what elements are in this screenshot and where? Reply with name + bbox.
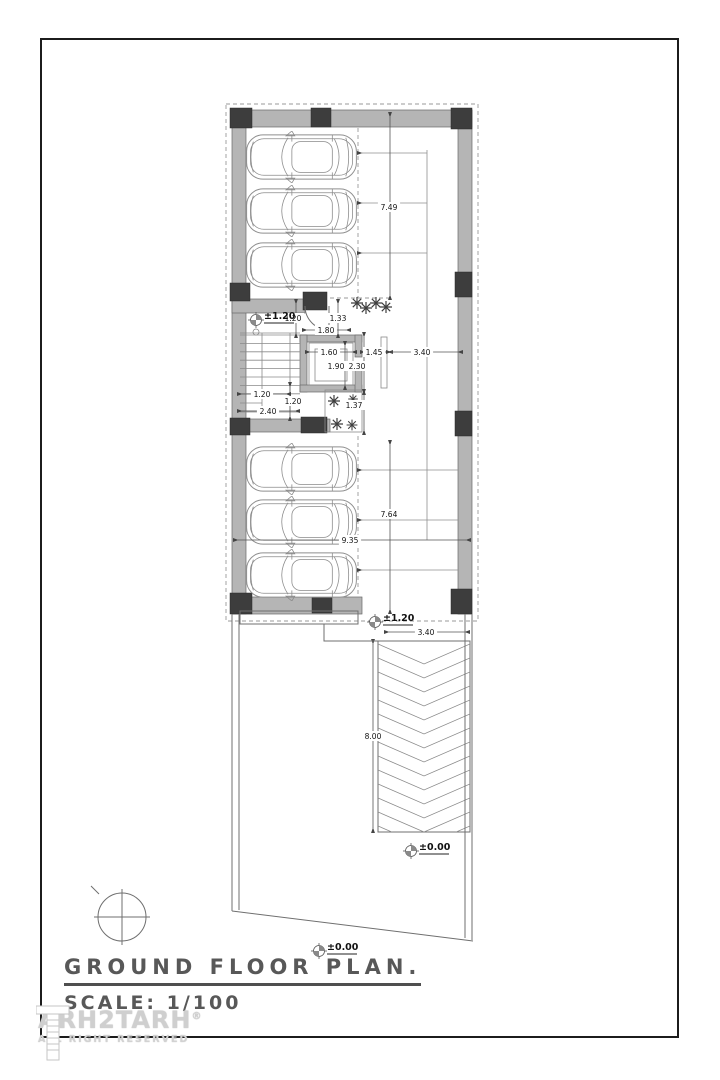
dimension-label: 1.60 [318,347,340,357]
svg-text:7.64: 7.64 [381,510,398,519]
svg-text:1.20: 1.20 [254,390,271,399]
svg-text:±1.20: ±1.20 [264,311,296,322]
dimension-label: 2.30 [346,361,368,371]
car-bottom-1 [247,443,357,495]
floor-plan-drawing: 7.491.201.331.801.601.453.401.902.301.20… [0,0,720,1080]
svg-text:±1.20: ±1.20 [383,613,415,624]
dimension-label: 2.40 [257,406,279,416]
level-marker: ±1.20 [367,613,415,630]
dimension-label: 1.45 [363,347,385,357]
dimension-label: 1.20 [282,396,304,406]
svg-text:9.35: 9.35 [342,536,359,545]
svg-text:±0.00: ±0.00 [327,942,359,953]
ramp-chevrons [378,644,470,860]
level-marker: ±0.00 [403,842,451,859]
car-top-2 [247,185,357,237]
wall-stub [381,337,387,388]
dimension-label: 1.33 [327,313,349,323]
dimension-label: 3.40 [411,347,433,357]
svg-text:1.33: 1.33 [330,314,347,323]
level-marker: ±1.20 [248,311,296,328]
svg-text:1.90: 1.90 [328,362,345,371]
svg-text:2.30: 2.30 [349,362,366,371]
dimension-label: 1.80 [315,325,337,335]
car-top-1 [247,131,357,183]
shrub-row [351,297,392,314]
yard-boundary [232,614,473,941]
dimension-label: 8.00 [362,731,384,741]
svg-text:3.40: 3.40 [414,348,431,357]
drawing-sheet: 7.491.201.331.801.601.453.401.902.301.20… [0,0,720,1080]
ramp-area [240,611,470,860]
north-arrow-icon [91,886,150,945]
page-title: GROUND FLOOR PLAN. [64,955,421,979]
dimension-label: 9.35 [339,535,361,545]
svg-text:1.37: 1.37 [346,401,363,410]
svg-text:1.20: 1.20 [285,397,302,406]
dimension-label: 1.90 [325,361,347,371]
svg-text:1.80: 1.80 [318,326,335,335]
svg-text:8.00: 8.00 [365,732,382,741]
svg-text:1.45: 1.45 [366,348,383,357]
dimension-label: 1.20 [251,389,273,399]
title-underline [64,983,421,986]
dimension-label: 1.37 [343,400,365,410]
dimension-label: 7.49 [378,202,400,212]
svg-text:7.49: 7.49 [381,203,398,212]
svg-text:3.40: 3.40 [418,628,435,637]
watermark: ARH2TARH® ALL RIGHT RESERVED [36,998,203,1045]
dimension-label: 3.40 [415,627,437,637]
dimension-label: 7.64 [378,509,400,519]
svg-text:1.60: 1.60 [321,348,338,357]
svg-text:2.40: 2.40 [260,407,277,416]
car-bottom-3 [247,549,357,601]
planter-box [325,390,720,997]
registered-mark: ® [192,1011,203,1022]
svg-text:±0.00: ±0.00 [419,842,451,853]
parking-leader-lines [362,150,458,570]
watermark-logo-icon [36,998,70,1062]
car-top-3 [247,239,357,291]
